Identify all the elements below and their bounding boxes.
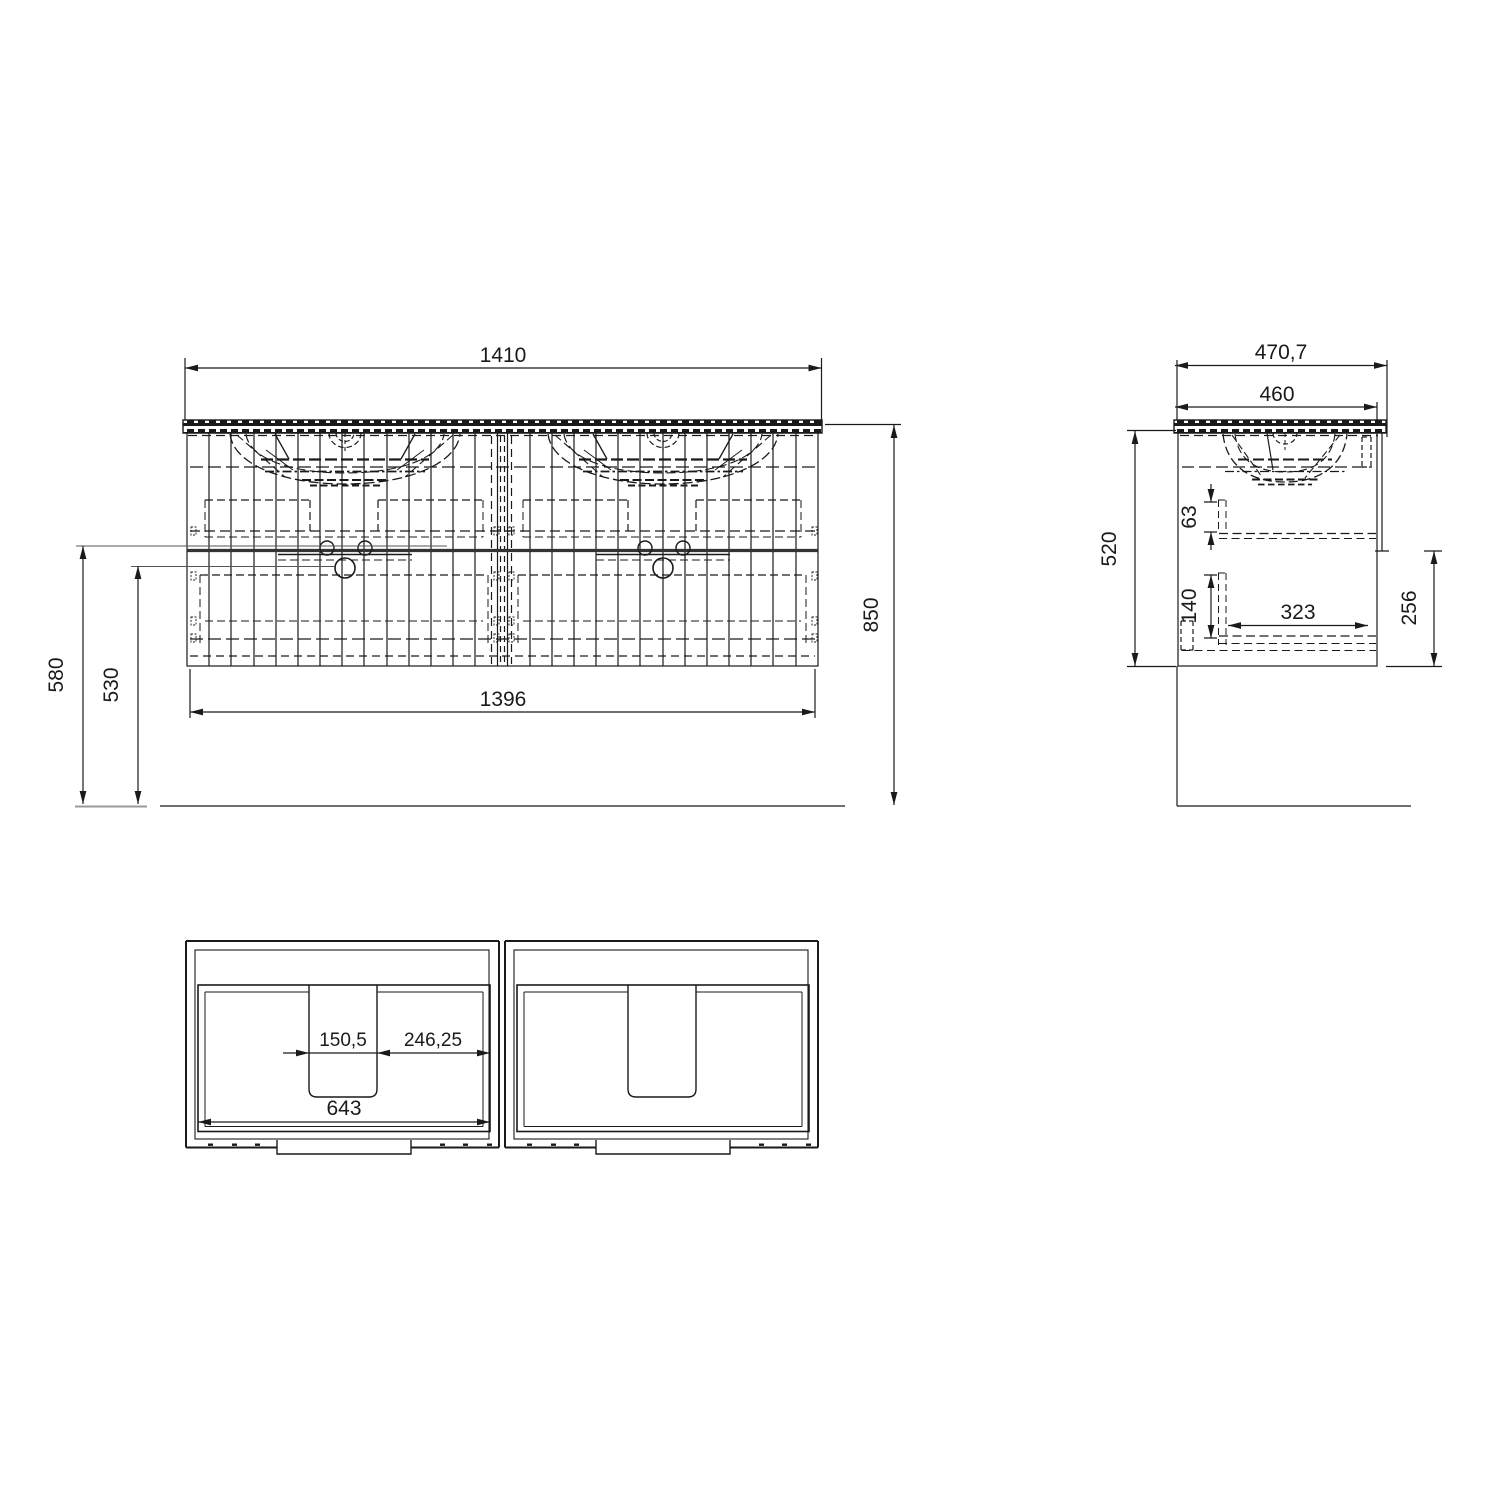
dim-side-drawer-depth: 323 — [1228, 601, 1368, 629]
dim-label-1396: 1396 — [480, 688, 527, 711]
dim-label-530: 530 — [100, 667, 123, 702]
dim-label-520: 520 — [1098, 531, 1121, 566]
dim-label-1410: 1410 — [480, 344, 527, 367]
vanity-technical-drawing: 1410 1396 850 580 530 — [0, 0, 1500, 1500]
dim-front-drawer-height: 530 — [100, 566, 335, 804]
dim-label-460: 460 — [1259, 383, 1294, 406]
front-cabinet-body — [187, 433, 818, 666]
plan-view: 150,5 246,25 643 — [186, 941, 818, 1154]
dim-label-150-5: 150,5 — [319, 1030, 367, 1051]
dim-side-countertop-depth: 460 — [1175, 383, 1377, 425]
side-view: 470,7 460 520 63 140 323 256 — [1098, 341, 1442, 806]
plan-drawer-right — [505, 941, 818, 1154]
side-upper-drawer-hidden — [1218, 500, 1376, 539]
front-view: 1410 1396 850 580 530 — [45, 344, 901, 807]
dim-plan-inner-width: 643 — [198, 1097, 490, 1125]
dim-plan-cutout: 150,5 246,25 — [283, 1030, 490, 1056]
dim-side-lower-height: 256 — [1386, 551, 1442, 667]
dim-front-countertop-width: 1410 — [185, 344, 822, 424]
dim-front-body-width: 1396 — [190, 669, 815, 718]
dim-label-323: 323 — [1280, 601, 1315, 624]
dim-label-580: 580 — [45, 657, 68, 692]
dim-label-256: 256 — [1398, 590, 1421, 625]
dim-label-850: 850 — [860, 597, 883, 632]
dim-side-lower-gap: 140 — [1178, 575, 1217, 638]
dim-label-470-7: 470,7 — [1255, 341, 1308, 364]
washbasin-side-section — [1223, 433, 1347, 485]
dim-side-body-height: 520 — [1098, 431, 1176, 667]
dim-label-246-25: 246,25 — [404, 1030, 462, 1051]
drawing-canvas: 1410 1396 850 580 530 — [0, 0, 1500, 1500]
dim-label-63: 63 — [1178, 505, 1201, 528]
dim-side-upper-gap: 63 — [1178, 484, 1217, 550]
dim-label-140: 140 — [1178, 588, 1201, 623]
washbasin-left — [230, 433, 460, 486]
dim-front-total-height: 850 — [825, 425, 901, 806]
dim-label-643: 643 — [326, 1097, 361, 1120]
